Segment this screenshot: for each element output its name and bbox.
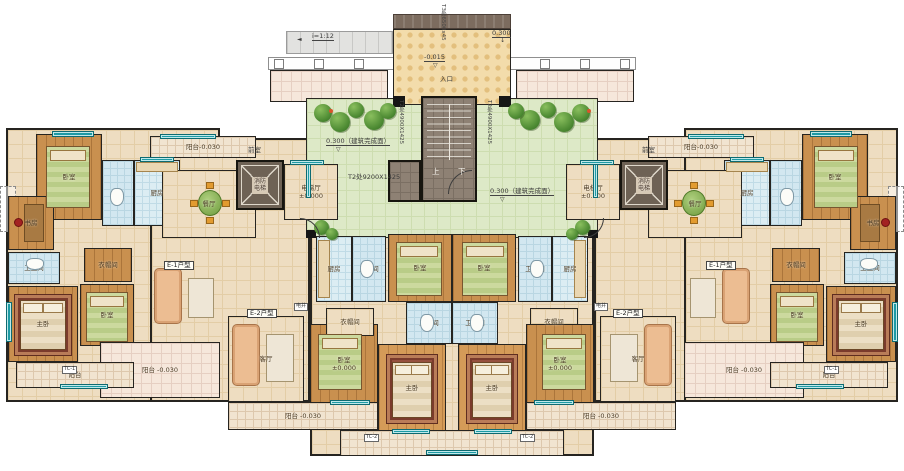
plant <box>380 103 396 119</box>
window-strip <box>330 400 370 405</box>
closet-right-label: 衣帽间 <box>786 261 806 269</box>
balcony-e2-right-label: 阳台 -0.030 <box>583 412 619 420</box>
entrance-ramp <box>286 31 393 54</box>
sofa <box>154 268 182 324</box>
balcony-top-left-label: 阳台-0.030 <box>186 143 220 151</box>
closet-center-right-label: 衣帽间 <box>544 318 564 326</box>
master-bedroom-center-right-label: 主卧 <box>486 384 499 392</box>
terrace-bottom-left-label: 阳台 -0.030 <box>142 366 178 374</box>
toilet-icon <box>470 314 484 332</box>
study-left-label: 书房 <box>25 219 38 227</box>
balcony-e2-left-label: 阳台 -0.030 <box>285 412 321 420</box>
closet-left: 衣帽间 <box>84 248 132 282</box>
fire-elevator-right: 消防 电梯 <box>620 160 668 210</box>
kitchen-top-right-label: 厨房 <box>741 189 754 197</box>
elevator-hall-left-label: 电梯厅 ±0.000 <box>299 184 323 200</box>
window-strip <box>52 131 94 137</box>
ctable <box>188 278 214 318</box>
bedroom-e2-left-label: 卧室 ±0.000 <box>332 356 356 372</box>
porch-roof <box>393 14 511 29</box>
ac-tag-center-left: TC-2 <box>364 434 379 442</box>
sofa <box>644 324 672 386</box>
floor-plan-canvas: 卧室卫厨房阳台-0.030餐厅消防 电梯电梯厅 ±0.000书房卫生间衣帽间主卧… <box>0 0 904 471</box>
plant <box>330 112 350 132</box>
toilet-icon <box>420 314 434 332</box>
closet-center-left-label: 衣帽间 <box>340 318 360 326</box>
kitchen-center-left-label: 厨房 <box>328 265 341 273</box>
window-strip <box>306 162 311 198</box>
living-e2-right-label: 客厅 <box>632 355 645 363</box>
closet-right: 衣帽间 <box>772 248 820 282</box>
bedroom-e2-right-label: 卧室 ±0.000 <box>548 356 572 372</box>
dining-chair <box>690 217 698 224</box>
master-bedroom-center-left-label: 主卧 <box>406 384 419 392</box>
window-strip <box>140 157 174 162</box>
toilet-icon <box>360 260 374 278</box>
column <box>274 59 284 69</box>
entrance-porch <box>393 29 511 105</box>
stair-dim: T2处9200X1425 <box>348 174 400 181</box>
courtyard-dim-right: T2处4900X1425 <box>486 100 492 144</box>
window-strip <box>6 302 12 342</box>
fire-elevator-left: 消防 电梯 <box>236 160 284 210</box>
plant <box>554 112 574 132</box>
unit-e1-right: E-1户型 <box>706 261 736 270</box>
dining-chair <box>190 200 198 207</box>
rchair <box>881 218 890 227</box>
counter <box>136 162 178 172</box>
balcony-top-left: 阳台-0.030 <box>150 136 256 158</box>
courtyard-level-left: 0.300（建筑完成面） <box>326 138 390 146</box>
closet-center-left: 衣帽间 <box>326 308 374 336</box>
toilet-icon <box>530 260 544 278</box>
counter <box>726 162 768 172</box>
window-strip <box>426 450 478 455</box>
balcony-top-right: 阳台-0.030 <box>648 136 754 158</box>
stair-down: 下 <box>458 168 466 176</box>
window-strip <box>60 384 108 389</box>
toilet-icon <box>780 188 794 206</box>
bedroom-center-right-label: 卧室 <box>478 264 491 272</box>
shaft-tag-left: 电井 <box>294 303 308 311</box>
ac-tag-bottom-right: TC-1 <box>824 366 839 374</box>
fire-elevator-right-label: 消防 电梯 <box>636 177 652 194</box>
window-strip <box>688 134 744 139</box>
dining-chair <box>674 200 682 207</box>
dining-chair <box>706 200 714 207</box>
master-bedroom-left-label: 主卧 <box>37 320 50 328</box>
sofa <box>722 268 750 324</box>
front-room-left: 前室 <box>248 147 261 154</box>
plant <box>572 104 590 122</box>
window-strip <box>290 160 324 165</box>
plant <box>348 102 364 118</box>
ac-tag-center-right: TC-2 <box>520 434 535 442</box>
window-strip <box>160 134 216 139</box>
column <box>354 59 364 69</box>
window-strip <box>796 384 844 389</box>
window-strip <box>593 162 598 198</box>
window-strip <box>474 429 512 434</box>
stair-up: 上 <box>432 168 440 176</box>
elevator-hall-left: 电梯厅 ±0.000 <box>284 164 338 220</box>
plant <box>508 103 524 119</box>
rchair <box>14 218 23 227</box>
study-right-label: 书房 <box>867 219 880 227</box>
kitchen-top-left-label: 厨房 <box>151 189 164 197</box>
bedroom-top-left-label: 卧室 <box>63 173 76 181</box>
toilet-icon <box>26 258 44 270</box>
dining-left-label: 餐厅 <box>203 200 216 208</box>
column <box>580 59 590 69</box>
window-strip <box>810 131 852 137</box>
window-strip <box>892 302 898 342</box>
fire-elevator-left-label: 消防 电梯 <box>252 177 268 194</box>
porch-level-arrow: ↓ <box>500 38 505 45</box>
toilet-icon <box>110 188 124 206</box>
ac-tag-bottom-left: TC-1 <box>62 366 77 374</box>
kitchen-center-right-label: 厨房 <box>564 265 577 273</box>
sofa <box>232 324 260 386</box>
entry-level: -0.015 <box>424 54 445 62</box>
porch-dim: T3处6500x45 <box>440 4 446 41</box>
dining-right-label: 餐厅 <box>689 200 702 208</box>
balcony-e2-right: 阳台 -0.030 <box>526 402 676 430</box>
plant <box>566 228 578 240</box>
closet-left-label: 衣帽间 <box>98 261 118 269</box>
column <box>620 59 630 69</box>
plant <box>326 228 338 240</box>
dining-chair <box>690 182 698 189</box>
courtyard-level-right: 0.300（建筑完成面） <box>490 188 554 196</box>
unit-e1-left: E-1户型 <box>164 261 194 270</box>
ctable <box>690 278 716 318</box>
living-e2-left-label: 客厅 <box>260 355 273 363</box>
balcony-top-right-label: 阳台-0.030 <box>684 143 718 151</box>
dining-chair <box>206 182 214 189</box>
unit-e2-left: E-2户型 <box>247 309 277 318</box>
column <box>314 59 324 69</box>
entry-level-tri: ▽ <box>433 63 438 70</box>
column <box>540 59 550 69</box>
window-strip <box>580 160 614 165</box>
balcony-e2-left: 阳台 -0.030 <box>228 402 378 430</box>
courtyard-level-left-tri: ▽ <box>336 147 341 154</box>
dining-chair <box>222 200 230 207</box>
shaft-tag-right: 电井 <box>594 303 608 311</box>
toilet-icon <box>860 258 878 270</box>
window-strip <box>534 400 574 405</box>
courtyard-dim-left: T2处4900X1425 <box>398 100 404 144</box>
plant <box>540 102 556 118</box>
front-room-right: 前室 <box>642 147 655 154</box>
courtyard-level-right-tri: ▽ <box>500 197 505 204</box>
master-bedroom-right-label: 主卧 <box>855 320 868 328</box>
dining-chair <box>206 217 214 224</box>
window-strip <box>730 157 764 162</box>
bedroom-bottom-right-label: 卧室 <box>791 311 804 319</box>
entry-label: 入口 <box>440 76 453 83</box>
bedroom-top-right-label: 卧室 <box>829 173 842 181</box>
terrace-bottom-right-label: 阳台 -0.030 <box>726 366 762 374</box>
ramp-arrow: ◄ <box>297 37 302 44</box>
bedroom-center-left-label: 卧室 <box>414 264 427 272</box>
bedroom-bottom-left-label: 卧室 <box>101 311 114 319</box>
window-strip <box>392 429 430 434</box>
unit-e2-right: E-2户型 <box>613 309 643 318</box>
ramp-slope: i=1:12 <box>312 33 334 41</box>
